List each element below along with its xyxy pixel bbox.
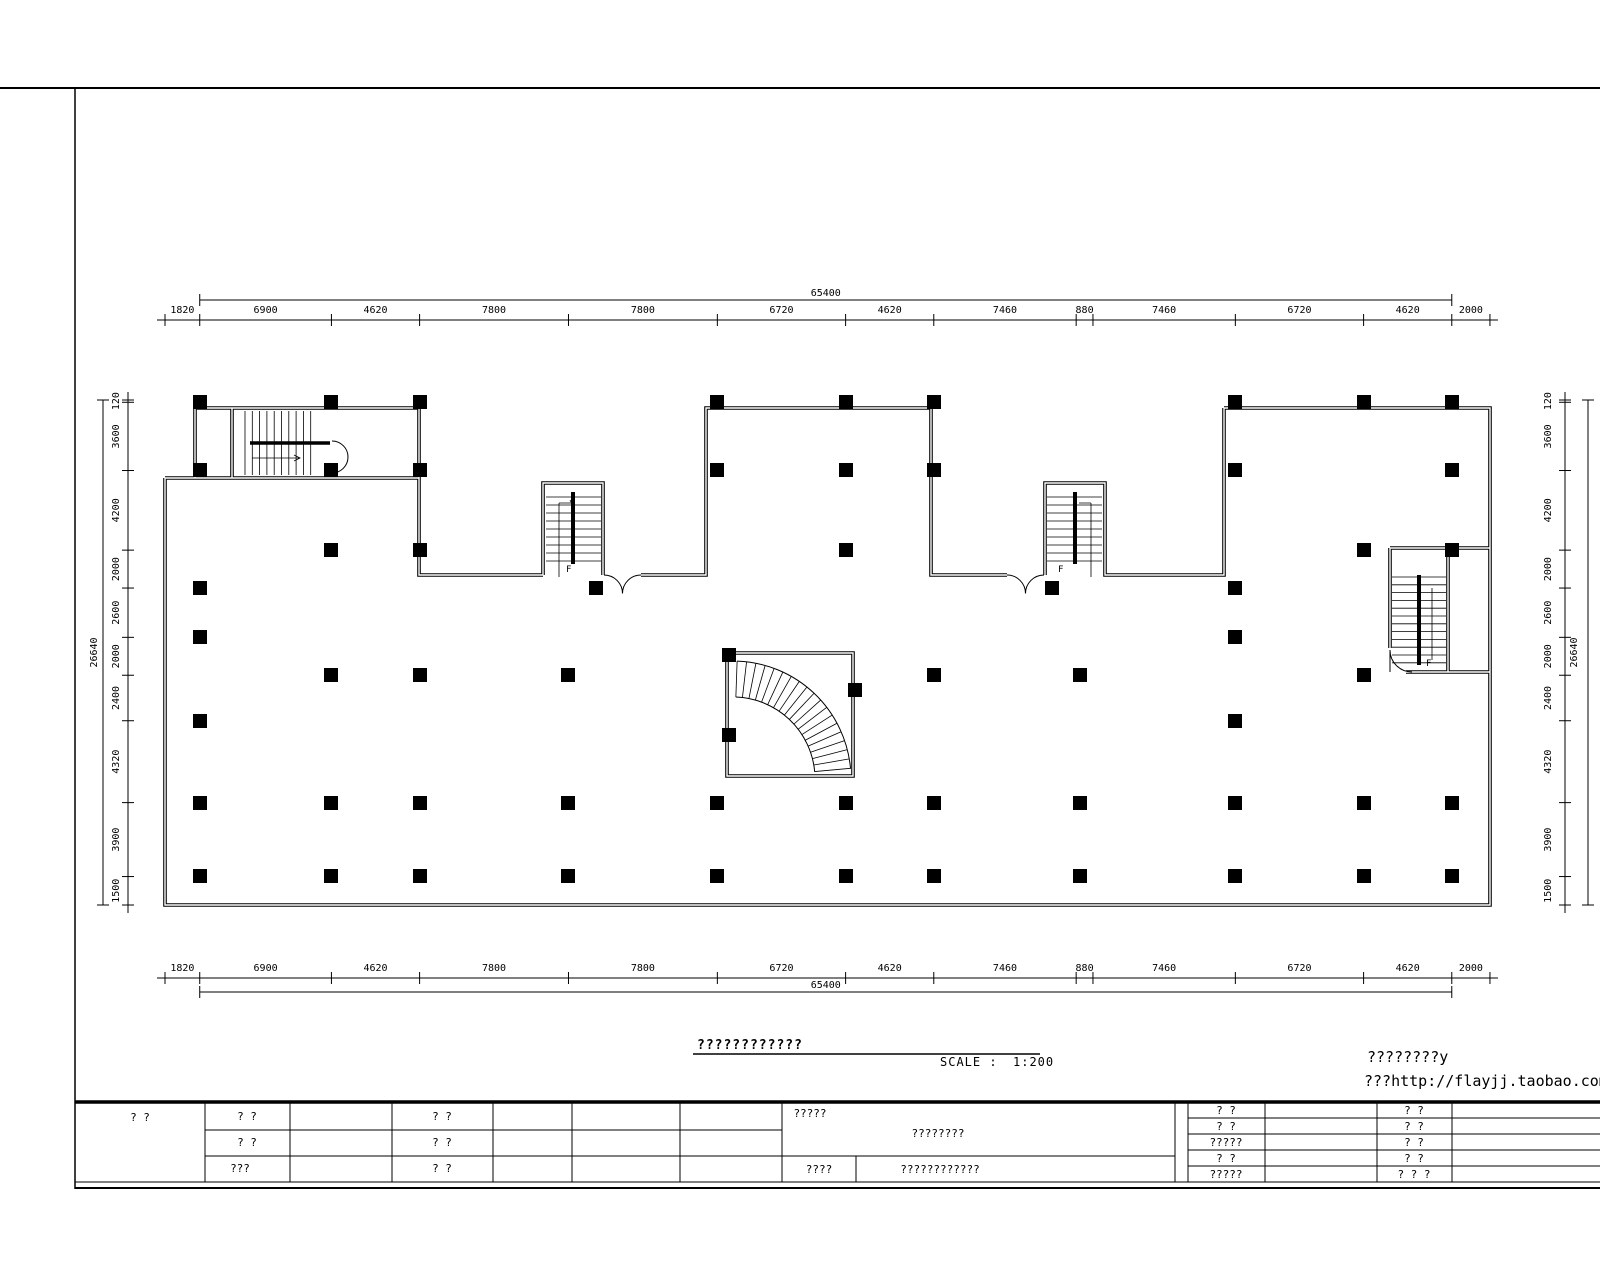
- dim-label: 1820: [170, 963, 194, 974]
- column-marker: [1445, 543, 1459, 557]
- dim-label: 4200: [1543, 498, 1554, 522]
- dim-label: 7800: [631, 305, 655, 316]
- dim-label: 4620: [878, 305, 902, 316]
- dim-label: 26640: [1569, 637, 1580, 667]
- tb-cell: ?????: [1209, 1136, 1242, 1149]
- dim-label: 6720: [769, 963, 793, 974]
- dim-label: 2000: [111, 644, 122, 668]
- column-marker: [839, 543, 853, 557]
- stair-up-label: F: [1058, 565, 1063, 575]
- tb-cell: ? ?: [1216, 1104, 1236, 1117]
- column-marker: [1357, 796, 1371, 810]
- column-marker: [710, 463, 724, 477]
- column-marker: [710, 395, 724, 409]
- tb-cell: ? ?: [1216, 1152, 1236, 1165]
- curved-tread: [755, 665, 765, 700]
- curved-tread: [798, 707, 827, 729]
- dim-label: 2000: [1543, 557, 1554, 581]
- column-marker: [1228, 796, 1242, 810]
- dim-label: 7800: [631, 963, 655, 974]
- dim-label: 65400: [811, 288, 841, 299]
- column-marker: [927, 395, 941, 409]
- curved-stair: [736, 661, 851, 772]
- curved-tread: [808, 732, 841, 746]
- tb-cell: ? ?: [432, 1110, 452, 1123]
- dim-label: 4620: [1396, 963, 1420, 974]
- dim-label: 7460: [1152, 963, 1176, 974]
- column-marker: [589, 581, 603, 595]
- exterior-and-interior-walls: [165, 408, 1490, 905]
- column-marker: [1228, 714, 1242, 728]
- dim-label: 4620: [878, 963, 902, 974]
- dim-label: 4200: [111, 498, 122, 522]
- column-marker: [839, 463, 853, 477]
- dim-label: 6720: [1287, 305, 1311, 316]
- drawing-title: ????????????: [697, 1038, 803, 1053]
- column-marker: [324, 796, 338, 810]
- column-marker: [1445, 796, 1459, 810]
- titleblock-text: ? ? ? ? ? ? ??? ? ? ? ? ? ? ????? ??????…: [130, 1104, 1431, 1181]
- stair-up-label: F: [566, 565, 571, 575]
- dim-label: 4620: [363, 305, 387, 316]
- column-marker: [324, 869, 338, 883]
- dim-label: 1500: [1543, 879, 1554, 903]
- dim-label: 3900: [1543, 828, 1554, 852]
- dim-label: 2000: [1543, 644, 1554, 668]
- door-arc-entrance-right: [1007, 575, 1044, 594]
- tb-cell: ???: [230, 1162, 250, 1175]
- dim-label: 6720: [1287, 963, 1311, 974]
- curved-tread: [749, 663, 756, 698]
- dim-label: 4620: [1396, 305, 1420, 316]
- dim-label: 120: [1543, 392, 1554, 410]
- curved-tread: [742, 662, 746, 698]
- column-marker: [1445, 869, 1459, 883]
- scale-label: SCALE :: [940, 1055, 998, 1069]
- column-marker: [1357, 668, 1371, 682]
- tb-cell: ? ?: [1216, 1120, 1236, 1133]
- scale-value: 1:200: [1013, 1055, 1054, 1069]
- column-marker: [324, 668, 338, 682]
- column-marker: [413, 869, 427, 883]
- column-marker: [561, 668, 575, 682]
- door-arcs: [332, 441, 1412, 672]
- column-marker: [927, 796, 941, 810]
- tb-project-name: ????????: [912, 1127, 965, 1140]
- column-marker: [193, 395, 207, 409]
- column-marker: [1228, 630, 1242, 644]
- dim-label: 1500: [111, 879, 122, 903]
- column-marker: [1445, 395, 1459, 409]
- watermark-url: ???http://flayjj.taobao.com: [1364, 1072, 1600, 1090]
- column-marker: [1045, 581, 1059, 595]
- dim-label: 3900: [111, 828, 122, 852]
- dim-label: 7800: [482, 963, 506, 974]
- dim-label: 7460: [993, 963, 1017, 974]
- dim-label: 2600: [111, 601, 122, 625]
- dim-label: 3600: [111, 424, 122, 448]
- stair-treads: [245, 411, 1446, 663]
- column-marker: [927, 869, 941, 883]
- floor-plan-sheet: F F F 1820690046207800780067204620746088…: [0, 0, 1600, 1280]
- tb-cell: ? ?: [1404, 1152, 1424, 1165]
- dim-label: 6720: [769, 305, 793, 316]
- curved-tread: [784, 687, 807, 715]
- column-marker: [722, 648, 736, 662]
- column-marker: [1228, 581, 1242, 595]
- curved-tread: [815, 768, 851, 771]
- column-marker: [1073, 668, 1087, 682]
- dim-label: 26640: [89, 637, 100, 667]
- curved-tread: [805, 723, 837, 740]
- dim-label: 2000: [1459, 963, 1483, 974]
- door-arc-stair-right: [1390, 650, 1412, 672]
- dim-label: 2400: [1543, 686, 1554, 710]
- drawing-title-block: ???????????? SCALE : 1:200: [693, 1038, 1054, 1069]
- column-marker: [839, 395, 853, 409]
- curved-tread: [811, 741, 845, 753]
- dim-label: 120: [111, 392, 122, 410]
- column-marker: [1357, 869, 1371, 883]
- curved-tread: [812, 750, 847, 759]
- column-marker: [413, 796, 427, 810]
- dim-label: 3600: [1543, 424, 1554, 448]
- dim-label: 7460: [993, 305, 1017, 316]
- dim-label: 880: [1076, 963, 1094, 974]
- tb-cell: ? ?: [237, 1110, 257, 1123]
- watermark-line1: ????????y: [1367, 1048, 1448, 1066]
- column-marker: [193, 796, 207, 810]
- column-marker: [413, 463, 427, 477]
- column-marker: [839, 869, 853, 883]
- tb-cell: ? ?: [432, 1162, 452, 1175]
- column-marker: [413, 543, 427, 557]
- tb-row3-value: ????????????: [900, 1163, 979, 1176]
- dim-label: 6900: [254, 963, 278, 974]
- dim-label: 2000: [111, 557, 122, 581]
- dimension-lines: 1820690046207800780067204620746088074606…: [89, 288, 1594, 998]
- column-marker: [193, 869, 207, 883]
- tb-cell: ? ?: [432, 1136, 452, 1149]
- curved-tread: [774, 676, 792, 707]
- column-marker: [1357, 395, 1371, 409]
- dim-label: 4620: [363, 963, 387, 974]
- tb-cell: ? ?: [1404, 1136, 1424, 1149]
- column-marker: [1445, 463, 1459, 477]
- curved-tread: [794, 700, 821, 724]
- column-marker: [1073, 796, 1087, 810]
- dim-label: 2600: [1543, 601, 1554, 625]
- door-arc-entrance-left: [604, 575, 641, 594]
- curved-tread: [789, 693, 814, 719]
- watermark: ????????y ???http://flayjj.taobao.com: [1364, 1048, 1600, 1090]
- sheet-frame: [0, 88, 1600, 1189]
- column-marker: [413, 668, 427, 682]
- dim-label: 65400: [811, 980, 841, 991]
- tb-cell: ?????: [1209, 1168, 1242, 1181]
- dim-label: 7460: [1152, 305, 1176, 316]
- column-marker: [561, 796, 575, 810]
- structural-columns: [193, 395, 1459, 883]
- column-marker: [1228, 869, 1242, 883]
- column-marker: [1228, 395, 1242, 409]
- titleblock-grid: [75, 1102, 1600, 1188]
- tb-row3-label: ????: [806, 1163, 833, 1176]
- curved-tread: [736, 661, 737, 697]
- tb-cell: ? ?: [1404, 1120, 1424, 1133]
- dim-label: 7800: [482, 305, 506, 316]
- column-marker: [839, 796, 853, 810]
- tb-project-label: ?????: [793, 1107, 826, 1120]
- dim-label: 880: [1076, 305, 1094, 316]
- column-marker: [722, 728, 736, 742]
- dim-label: 1820: [170, 305, 194, 316]
- column-marker: [324, 463, 338, 477]
- column-marker: [848, 683, 862, 697]
- tb-cell: ? ? ?: [1397, 1168, 1430, 1181]
- column-marker: [1357, 543, 1371, 557]
- dim-label: 4320: [111, 750, 122, 774]
- dim-label: 2400: [111, 686, 122, 710]
- stair-labels: F F F: [566, 565, 1431, 669]
- curved-tread: [762, 668, 775, 702]
- curved-tread: [814, 759, 849, 765]
- tb-cell: ? ?: [237, 1136, 257, 1149]
- column-marker: [561, 869, 575, 883]
- dim-label: 6900: [254, 305, 278, 316]
- column-marker: [413, 395, 427, 409]
- column-marker: [193, 581, 207, 595]
- stair-up-label: F: [1426, 659, 1431, 669]
- column-marker: [193, 463, 207, 477]
- column-marker: [1228, 463, 1242, 477]
- tb-cell: ? ?: [1404, 1104, 1424, 1117]
- curved-tread: [768, 672, 783, 705]
- dim-label: 2000: [1459, 305, 1483, 316]
- curved-tread: [779, 681, 799, 711]
- column-marker: [710, 869, 724, 883]
- curved-tread: [802, 715, 832, 735]
- column-marker: [927, 668, 941, 682]
- column-marker: [927, 463, 941, 477]
- column-marker: [324, 543, 338, 557]
- column-marker: [193, 714, 207, 728]
- tb-cell: ? ?: [130, 1111, 150, 1124]
- column-marker: [324, 395, 338, 409]
- dim-label: 4320: [1543, 750, 1554, 774]
- column-marker: [710, 796, 724, 810]
- column-marker: [193, 630, 207, 644]
- column-marker: [1073, 869, 1087, 883]
